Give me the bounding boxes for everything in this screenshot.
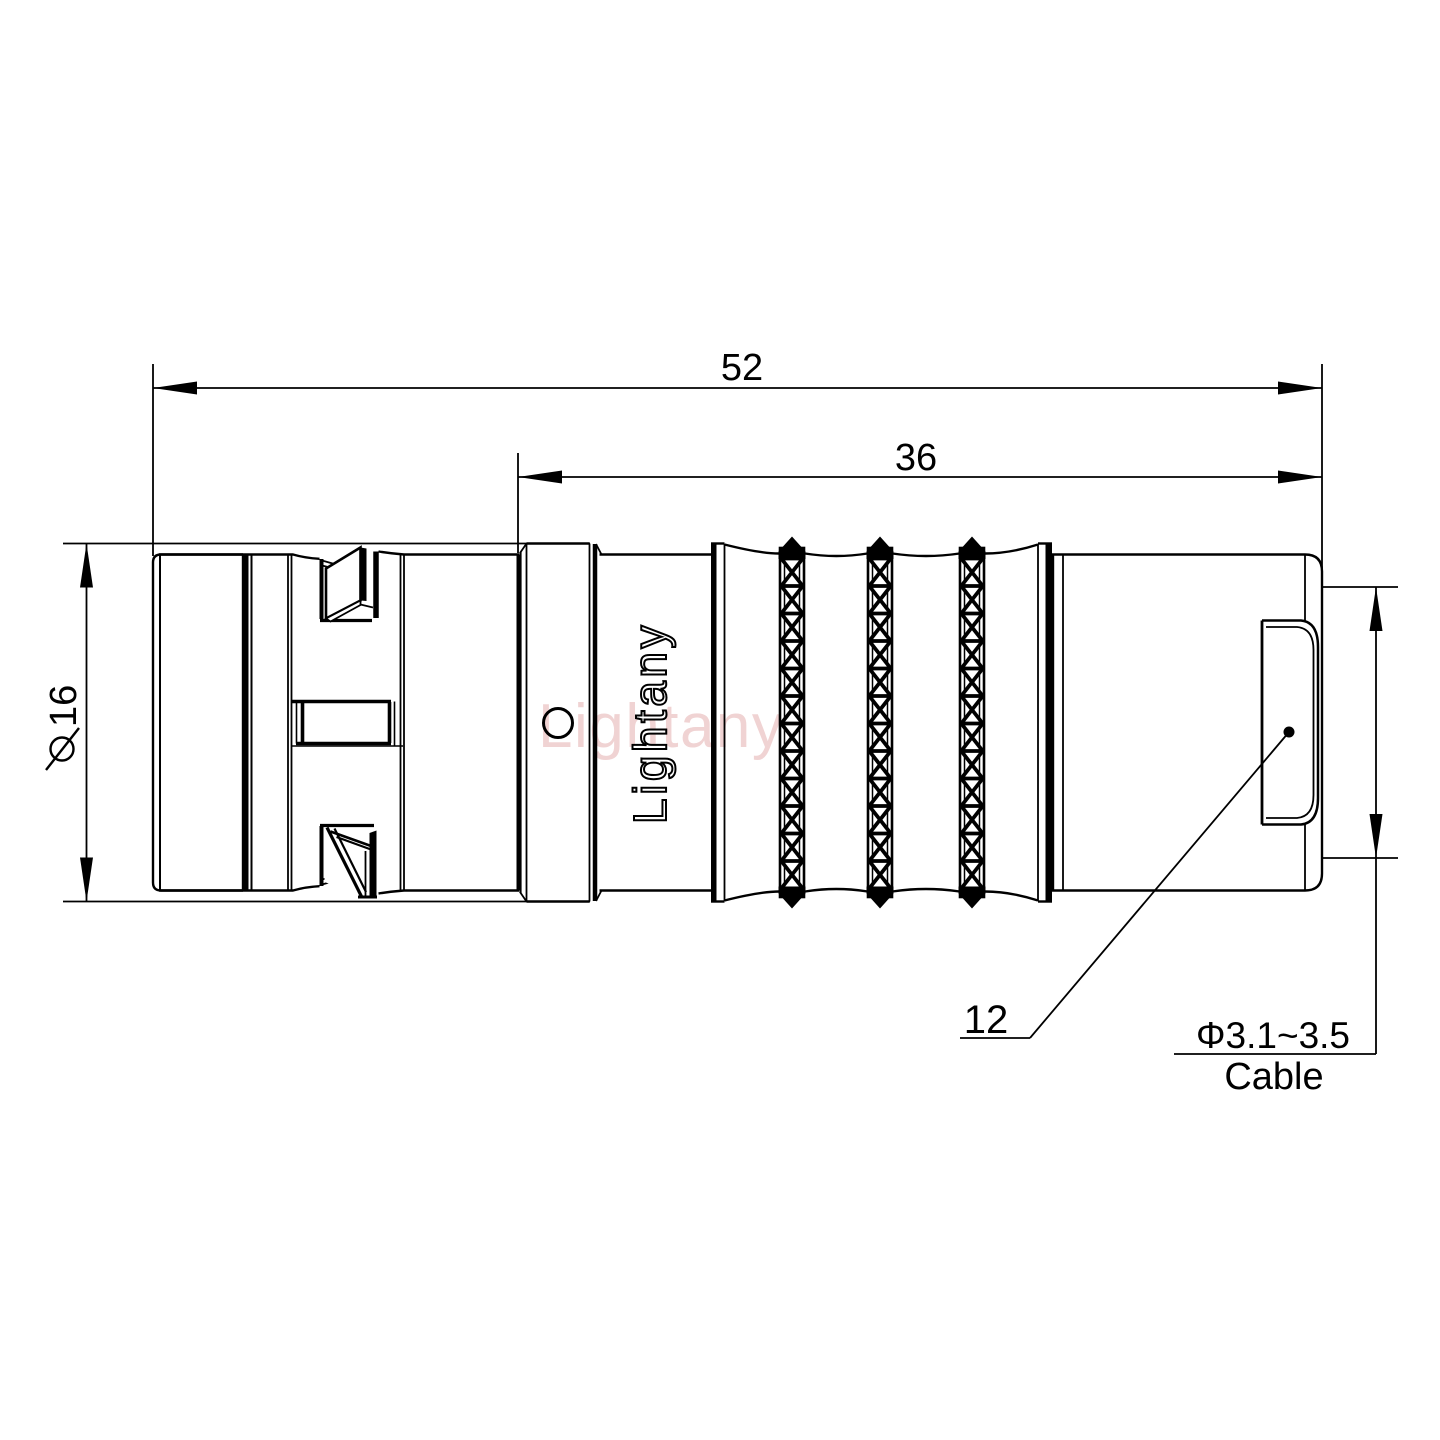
svg-text:36: 36 [895,437,937,479]
svg-text:Φ3.1~3.5: Φ3.1~3.5 [1196,1015,1350,1056]
svg-text:Cable: Cable [1224,1056,1323,1098]
svg-text:16: 16 [43,685,85,727]
svg-text:52: 52 [721,347,763,389]
svg-text:12: 12 [964,998,1009,1042]
svg-text:Lightany: Lightany [624,622,676,824]
